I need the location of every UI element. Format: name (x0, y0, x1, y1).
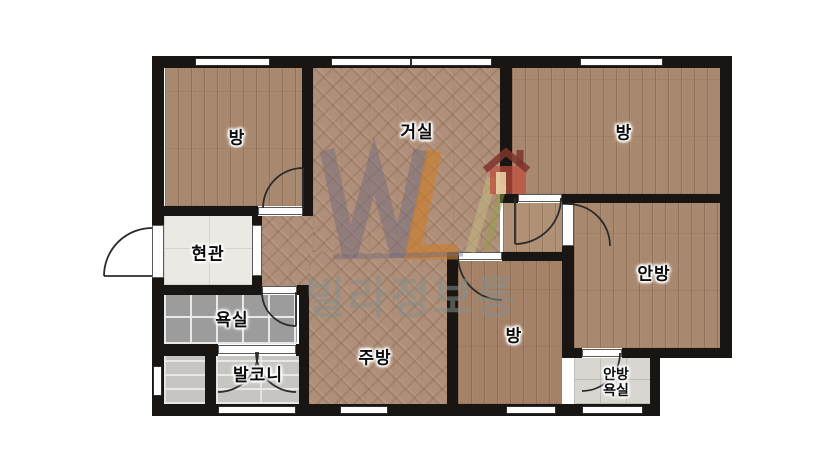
door-jamb-master-bath (582, 349, 622, 357)
door-jamb-balcony (218, 345, 296, 354)
kitchen-label: 주방 (358, 344, 391, 369)
master-bathroom-label: 안방 욕실 (603, 366, 629, 398)
wall-entrance-stub-b (252, 276, 262, 285)
window-living-1 (331, 58, 411, 66)
watermark-text: 빌라정보통 (305, 262, 535, 326)
door-arc-front-door (104, 228, 152, 276)
wall-master-left-stub (562, 194, 574, 204)
room-bottom-label: 방 (506, 322, 523, 347)
master-bathroom-label-line2: 욕실 (603, 382, 629, 398)
front-door-opening (152, 225, 164, 278)
window-room-bottom (506, 406, 556, 414)
living-room-label: 거실 (400, 118, 433, 143)
door-jamb-bathroom (262, 286, 297, 294)
window-kitchen (340, 406, 388, 414)
wall-room-tl-right (302, 56, 313, 216)
wall-outer-right (720, 56, 732, 358)
door-jamb-master (562, 204, 574, 246)
door-jamb-room-tl (258, 207, 303, 215)
wall-master-bottom-r (622, 348, 732, 358)
wall-entrance-stub-t (252, 216, 262, 225)
room-top-left-label: 방 (229, 124, 246, 149)
window-master-bath (582, 406, 643, 414)
utility-room-floor (164, 356, 205, 404)
window-balcony (218, 406, 296, 414)
master-bedroom-label: 안방 (637, 260, 670, 285)
wall-room-tr-bottom-r (562, 194, 732, 203)
window-room-tr (580, 58, 663, 66)
wall-step-v (650, 348, 660, 416)
door-jamb-room-bottom (458, 252, 502, 260)
wall-bath-bottom-r (296, 344, 309, 356)
bathroom-label: 욕실 (215, 306, 248, 331)
wall-living-right (500, 56, 512, 203)
wall-master-left (562, 246, 574, 356)
wall-master-bottom-l (562, 348, 582, 358)
door-jamb-room-tr (518, 194, 562, 202)
balcony-label: 발코니 (233, 361, 283, 386)
window-living-2 (411, 58, 492, 66)
room-top-right-label: 방 (616, 119, 633, 144)
wall-bath-top-l (152, 285, 262, 295)
living-room-floor (313, 68, 500, 252)
master-bathroom-label-line1: 안방 (603, 366, 629, 382)
window-utility (153, 366, 162, 396)
floor-plan-canvas: 빌라정보통 방 거실 방 현관 욕실 발코니 주방 방 안방 안방 욕실 (0, 0, 840, 472)
entrance-label: 현관 (191, 240, 224, 265)
window-room-tl (195, 58, 270, 66)
wall-balcony-divider (205, 348, 216, 416)
wall-room-tl-bottom (152, 206, 258, 216)
door-jamb-entrance-hall (252, 225, 262, 276)
wall-room-tr-bottom-l (500, 194, 518, 203)
alcove-floor (503, 203, 562, 252)
